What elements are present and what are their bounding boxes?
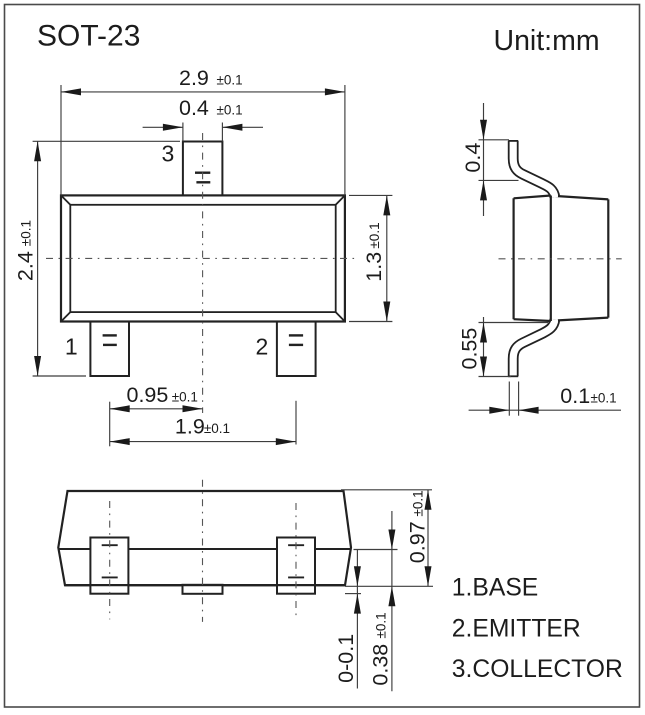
svg-text:±0.1: ±0.1 <box>19 220 34 246</box>
svg-text:1.3: 1.3 <box>362 252 386 282</box>
svg-text:0.4: 0.4 <box>179 96 209 120</box>
svg-text:2.4: 2.4 <box>14 251 38 281</box>
svg-text:0.55: 0.55 <box>457 328 481 370</box>
svg-text:0.97: 0.97 <box>406 521 430 563</box>
svg-text:±0.1: ±0.1 <box>373 612 388 638</box>
svg-text:1.9: 1.9 <box>175 414 205 438</box>
svg-text:3: 3 <box>162 141 175 167</box>
svg-text:1.BASE: 1.BASE <box>452 574 538 601</box>
svg-text:±0.1: ±0.1 <box>217 72 243 87</box>
svg-text:Unit:mm: Unit:mm <box>494 25 600 57</box>
svg-text:2: 2 <box>256 333 269 359</box>
svg-text:±0.1: ±0.1 <box>204 421 230 436</box>
svg-text:SOT-23: SOT-23 <box>37 19 140 52</box>
svg-text:0-0.1: 0-0.1 <box>334 634 358 683</box>
svg-text:1: 1 <box>65 333 78 359</box>
svg-text:±0.1: ±0.1 <box>411 490 426 516</box>
svg-text:0.1: 0.1 <box>560 384 590 408</box>
svg-text:±0.1: ±0.1 <box>367 222 382 248</box>
svg-text:±0.1: ±0.1 <box>172 390 198 405</box>
svg-text:0.95: 0.95 <box>127 383 169 407</box>
svg-text:±0.1: ±0.1 <box>591 390 617 405</box>
svg-text:0.4: 0.4 <box>461 143 485 173</box>
svg-text:0.38: 0.38 <box>368 644 392 686</box>
svg-text:2.EMITTER: 2.EMITTER <box>452 616 581 643</box>
svg-text:±0.1: ±0.1 <box>217 103 243 118</box>
svg-text:3.COLLECTOR: 3.COLLECTOR <box>452 656 623 683</box>
svg-text:2.9: 2.9 <box>179 66 209 90</box>
